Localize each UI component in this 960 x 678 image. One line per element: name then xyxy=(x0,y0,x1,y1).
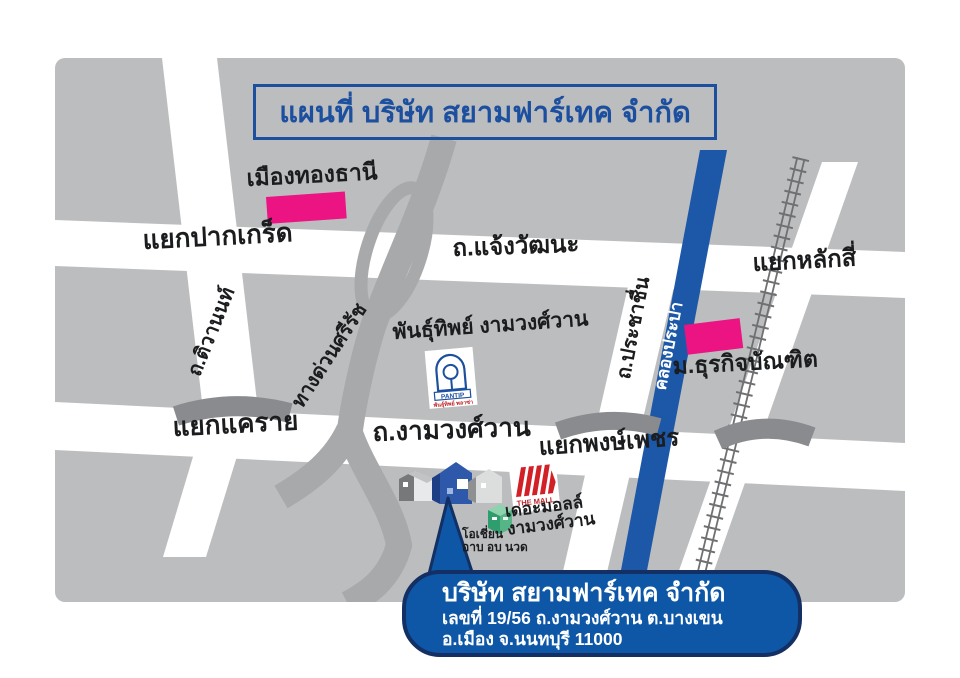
callout-company-name: บริษัท สยามฟาร์เทค จำกัด xyxy=(442,579,788,608)
label-ocean-massage: โอเชี่ยน อาบ อบ นวด xyxy=(462,528,528,553)
label-chaengwattana-road: ถ.แจ้งวัฒนะ xyxy=(452,232,580,262)
label-ocean-line2: อาบ อบ นวด xyxy=(462,541,528,554)
label-khae-rai-junction: แยกแคราย xyxy=(172,407,299,441)
company-address-callout: บริษัท สยามฟาร์เทค จำกัด เลขที่ 19/56 ถ.… xyxy=(402,570,802,657)
label-ngamwongwan-road: ถ.งามวงศ์วาน xyxy=(372,413,531,446)
bridge-bar-laksi-road xyxy=(718,429,812,440)
map-canvas: PANTIP พันธุ์ทิพย์ พลาซ่า xyxy=(0,0,960,678)
building-right-gray xyxy=(468,469,502,503)
building-left-gray xyxy=(399,471,434,501)
map-title-box: แผนที่ บริษัท สยามฟาร์เทค จำกัด xyxy=(253,84,717,140)
callout-address-line1: เลขที่ 19/56 ถ.งามวงศ์วาน ต.บางเขน xyxy=(442,608,788,629)
pantip-logo: PANTIP พันธุ์ทิพย์ พลาซ่า xyxy=(425,347,478,409)
label-ocean-line1: โอเชี่ยน xyxy=(462,528,528,541)
callout-address-line2: อ.เมือง จ.นนทบุรี 11000 xyxy=(442,629,788,650)
map-title: แผนที่ บริษัท สยามฟาร์เทค จำกัด xyxy=(279,89,691,135)
label-lak-si-junction: แยกหลักสี่ xyxy=(752,246,857,277)
